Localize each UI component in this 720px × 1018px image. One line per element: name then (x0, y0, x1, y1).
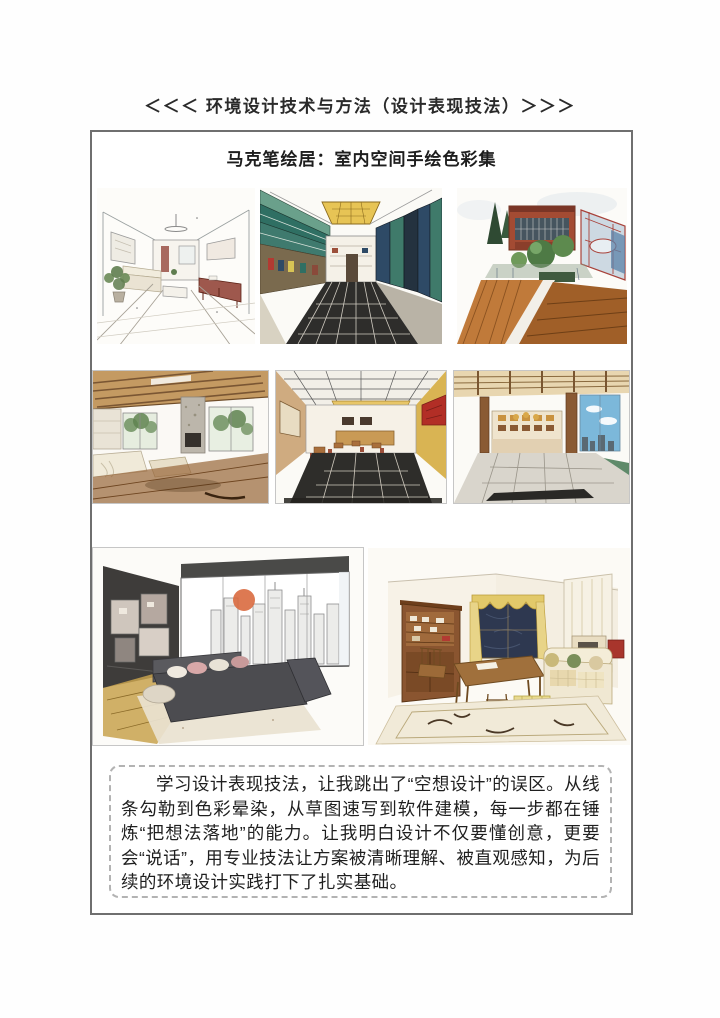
gallery-row-2 (93, 371, 629, 503)
board-title: 马克笔绘居：室内空间手绘色彩集 (92, 145, 631, 170)
reflection-note: 学习设计表现技法，让我跳出了“空想设计”的误区。从线条勾勒到色彩晕染，从草图速写… (109, 765, 612, 898)
gallery-row-1 (97, 188, 627, 344)
sketch-canvas (457, 188, 627, 344)
artwork-lobby-lounge (454, 371, 629, 503)
page-title: ＜＜＜ 环境设计技术与方法（设计表现技法）＞＞＞ (0, 92, 720, 117)
artwork-bookstore-interior (260, 188, 442, 344)
gallery-row-3 (93, 548, 630, 745)
sketch-canvas (97, 188, 255, 344)
reflection-text: 学习设计表现技法，让我跳出了“空想设计”的误区。从线条勾勒到色彩晕染，从草图速写… (121, 772, 600, 895)
document-page: ＜＜＜ 环境设计技术与方法（设计表现技法）＞＞＞ 马克笔绘居：室内空间手绘色彩集 (0, 0, 720, 1018)
artwork-courtyard-exterior (457, 188, 627, 344)
sketch-canvas (368, 548, 630, 745)
sketch-canvas (93, 371, 268, 503)
sketch-canvas (454, 371, 629, 503)
sketch-canvas (276, 371, 446, 503)
artwork-city-view-living-room (93, 548, 363, 745)
content-frame: 马克笔绘居：室内空间手绘色彩集 (90, 130, 633, 915)
artwork-beam-great-room (93, 371, 268, 503)
artwork-living-room-sketch (97, 188, 255, 344)
artwork-restaurant-interior (276, 371, 446, 503)
artwork-country-living-room (368, 548, 630, 745)
sketch-canvas (260, 188, 442, 344)
sketch-canvas (93, 548, 363, 745)
